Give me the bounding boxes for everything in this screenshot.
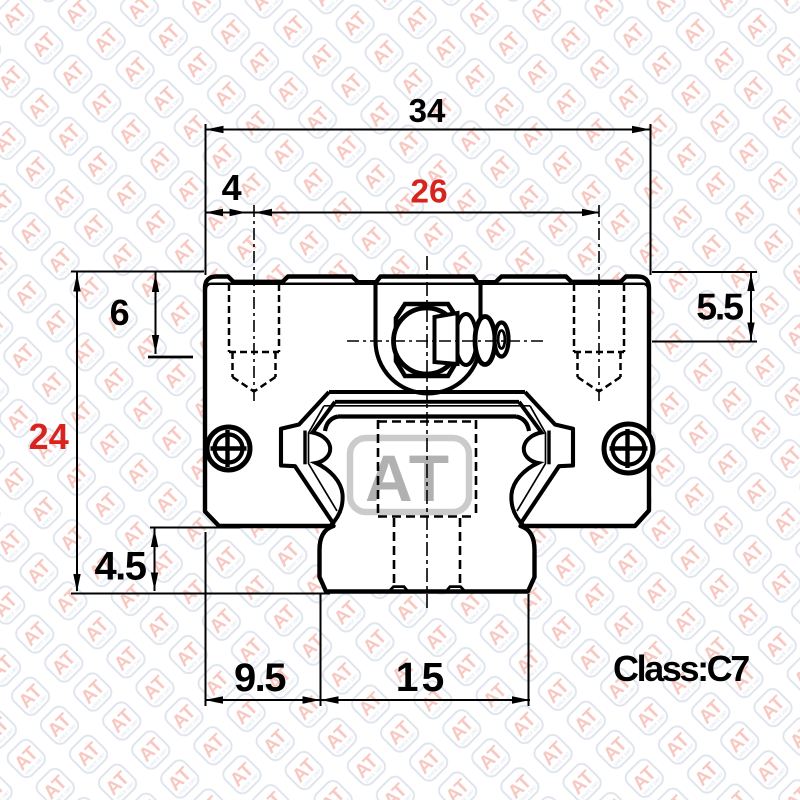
svg-text:Class:C7: Class:C7 — [613, 648, 749, 689]
svg-text:4: 4 — [222, 167, 242, 208]
svg-text:15: 15 — [396, 654, 448, 700]
svg-text:34: 34 — [409, 92, 446, 129]
svg-text:5.5: 5.5 — [696, 286, 743, 328]
svg-text:6: 6 — [110, 292, 130, 333]
svg-text:9.5: 9.5 — [234, 656, 286, 700]
svg-text:4.5: 4.5 — [94, 545, 146, 589]
svg-text:24: 24 — [29, 416, 69, 457]
svg-text:26: 26 — [410, 174, 447, 211]
